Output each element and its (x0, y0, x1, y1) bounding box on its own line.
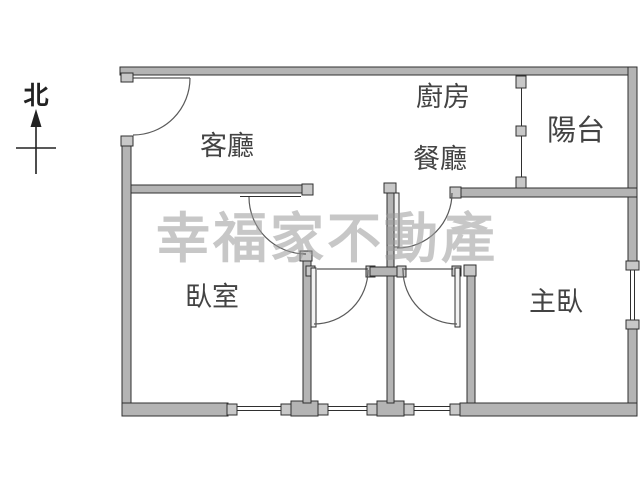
entry-door-arc (133, 78, 190, 135)
wall-living-bedroom-cap (302, 184, 313, 195)
wall-right-upper (628, 67, 637, 261)
floor-plan-drawing: 北 客廳 廚房 餐廳 陽台 臥室 主臥 幸福家不動產 (0, 0, 640, 480)
room-label-bedroom: 臥室 (185, 282, 239, 313)
balcony-partition-post-bottom (516, 177, 526, 188)
balcony-partition-post-middle (516, 126, 526, 136)
wall-dining-bottom (461, 188, 637, 197)
wall-top (120, 67, 637, 75)
room-label-kitchen: 廚房 (416, 82, 470, 113)
bottom-window3-cap-right (450, 404, 460, 415)
entry-door-jamb-bottom (121, 136, 133, 146)
bath-b-door-arc (403, 270, 457, 324)
bottom-window1-cap-left (227, 404, 237, 415)
wall-master-left (467, 276, 475, 403)
compass-north-label: 北 (23, 81, 48, 110)
compass: 北 (16, 81, 56, 174)
wall-bottom-right (460, 403, 637, 416)
wall-bath-a-left (303, 261, 311, 403)
doors (133, 78, 460, 327)
room-label-balcony: 陽台 (547, 113, 605, 147)
agency-watermark: 幸福家不動產 (156, 207, 498, 270)
room-label-dining: 餐廳 (413, 144, 467, 175)
floor-plan-canvas: 北 客廳 廚房 餐廳 陽台 臥室 主臥 幸福家不動產 (0, 0, 640, 480)
wall-left (122, 146, 131, 416)
bottom-window2-cap-left (318, 404, 328, 415)
balcony-partition-post-top (516, 76, 526, 88)
right-window-cap-bottom (626, 320, 639, 329)
bath-b-door-leaf (455, 268, 460, 327)
bottom-window3-cap-left (404, 404, 414, 415)
room-label-living: 客廳 (200, 131, 254, 162)
bath-a-door-arc (314, 270, 368, 324)
wall-living-bedroom (131, 185, 302, 193)
bottom-window1-cap-right (281, 404, 291, 415)
bath-a-door-leaf (311, 268, 316, 327)
central-wall-cap (384, 183, 396, 193)
right-window-cap-top (626, 261, 639, 270)
bottom-window2-cap-right (367, 404, 377, 415)
wall-bottom-left (122, 403, 228, 416)
room-label-master: 主臥 (529, 287, 583, 318)
compass-arrow-head-icon (31, 109, 42, 127)
entry-door-jamb-top (121, 73, 133, 82)
balcony-partition (516, 75, 526, 188)
